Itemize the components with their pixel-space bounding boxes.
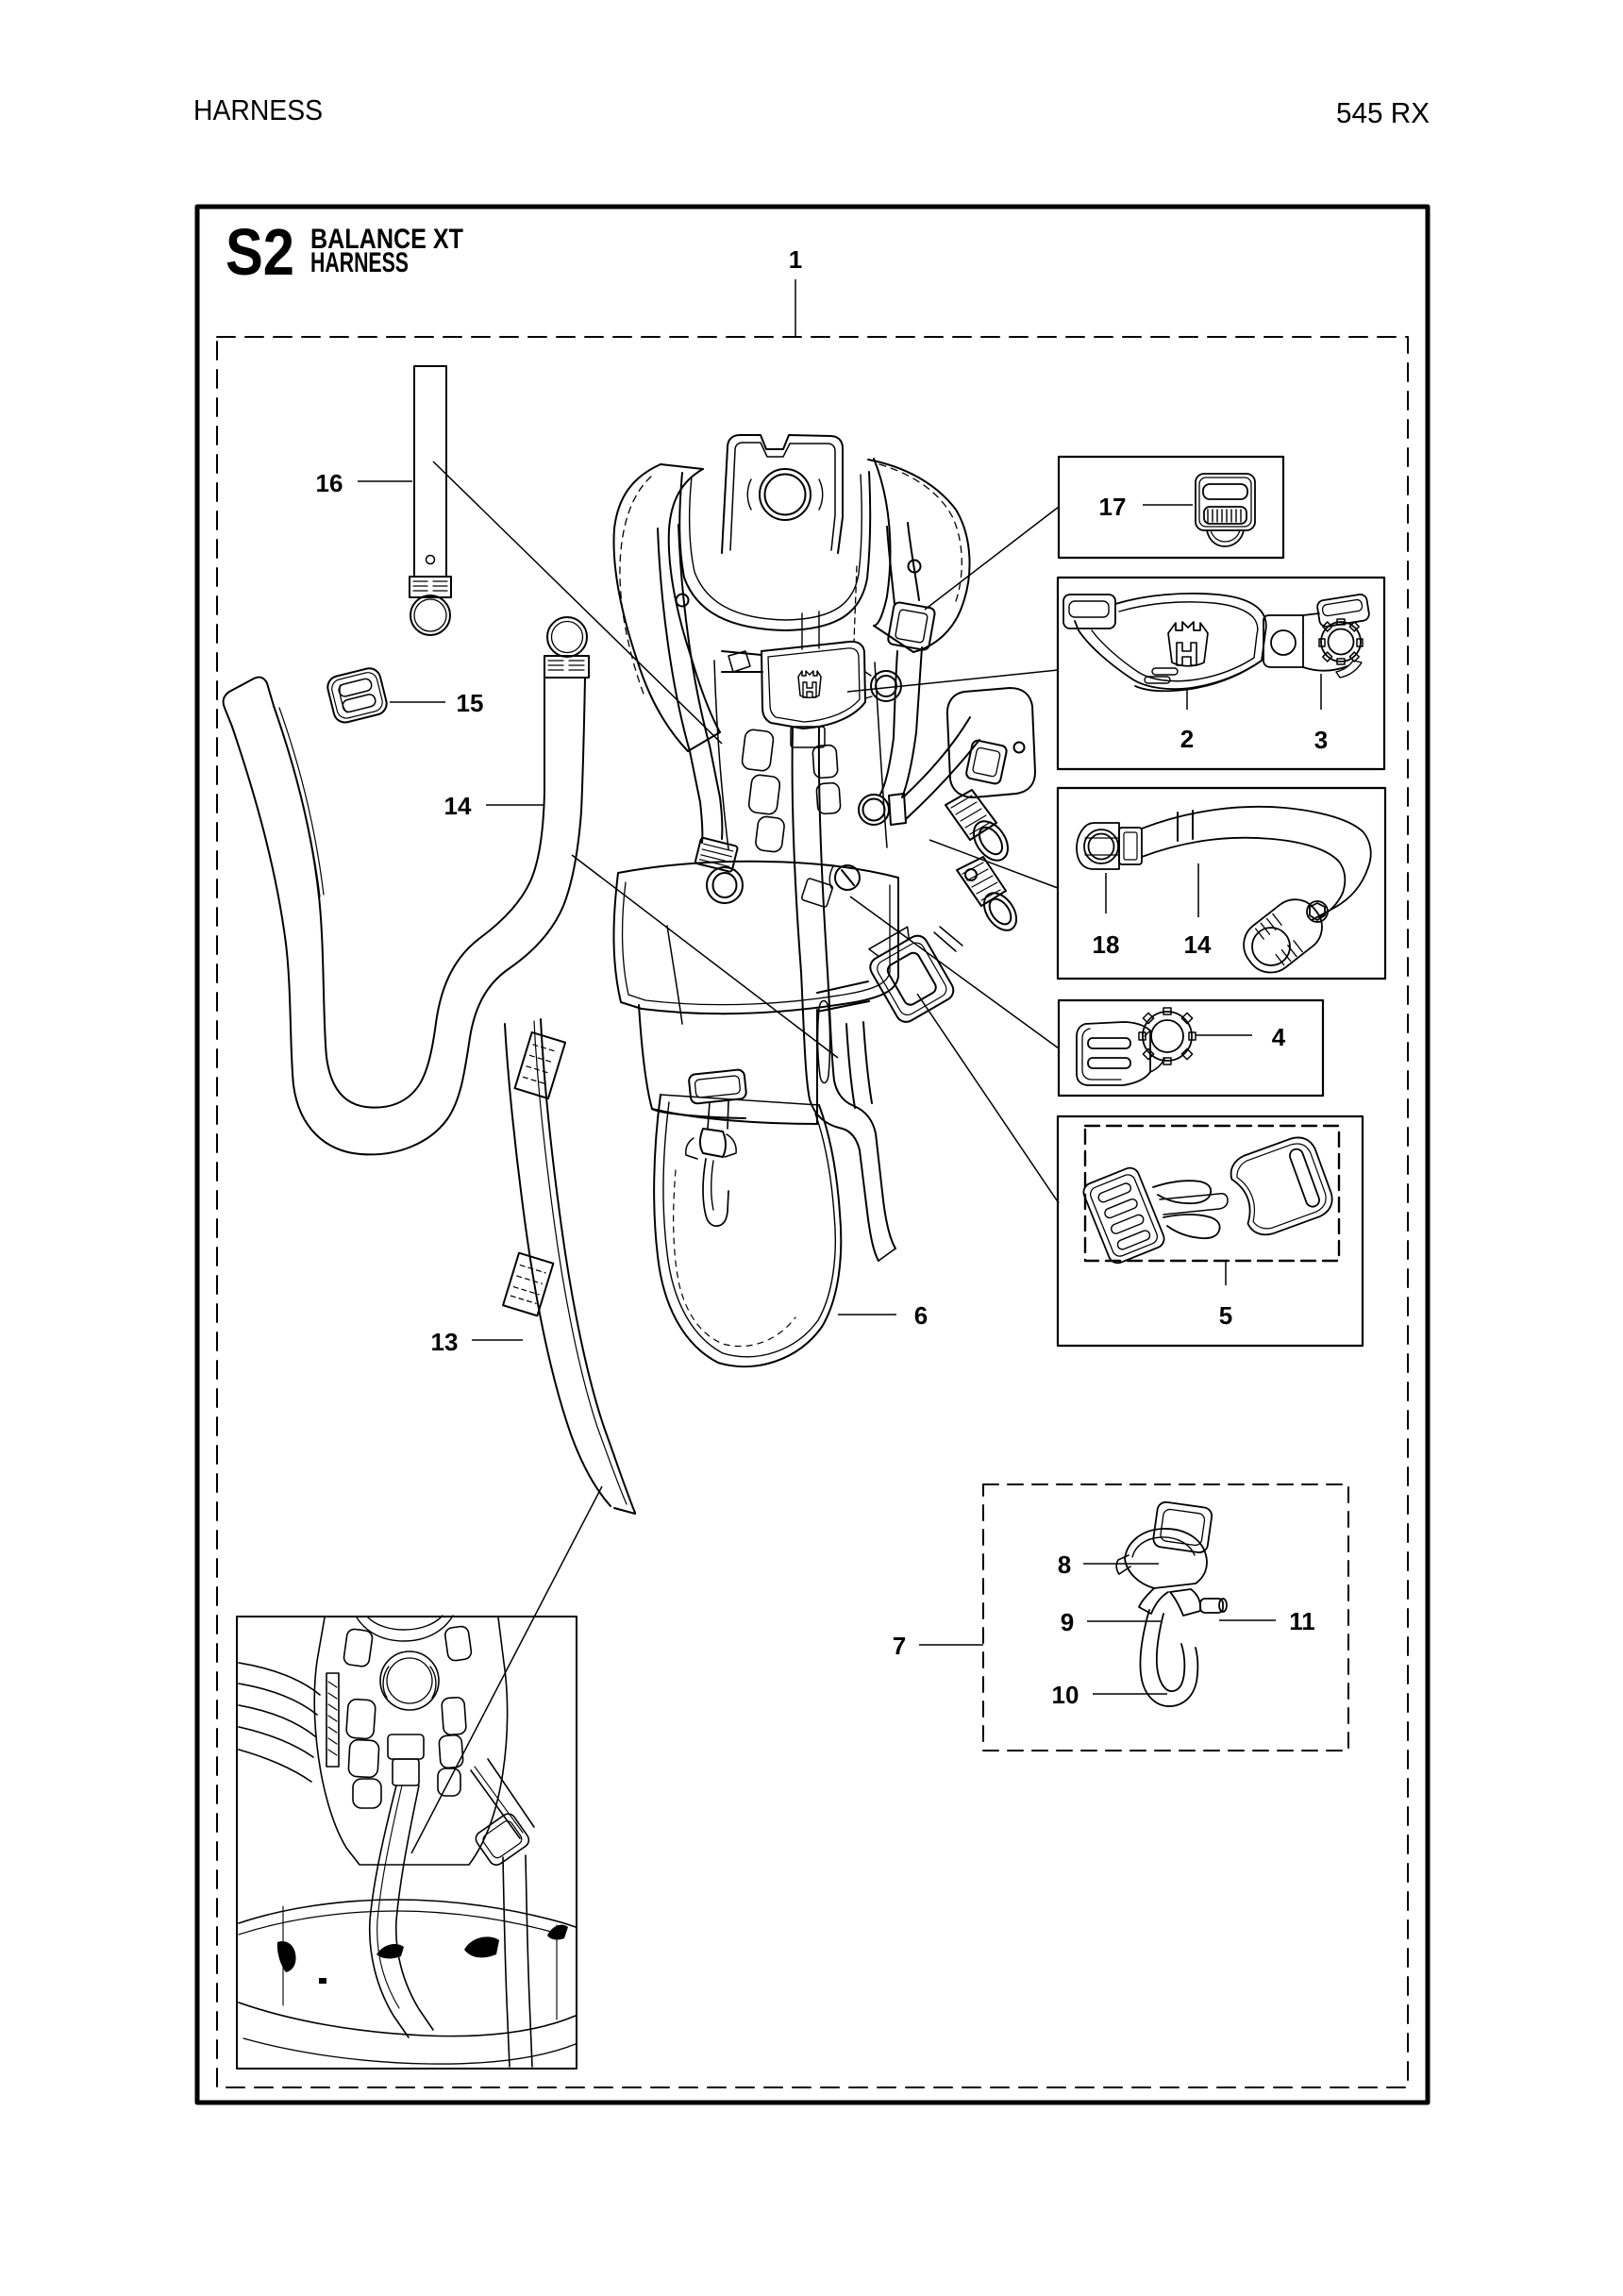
svg-text:7: 7 [893, 1632, 906, 1660]
svg-text:14: 14 [444, 792, 472, 820]
svg-text:18: 18 [1093, 930, 1120, 959]
svg-text:9: 9 [1061, 1608, 1074, 1636]
svg-text:6: 6 [914, 1301, 928, 1330]
svg-text:8: 8 [1058, 1550, 1071, 1579]
svg-text:5: 5 [1219, 1301, 1232, 1330]
svg-text:S2: S2 [226, 215, 294, 289]
svg-text:15: 15 [457, 689, 484, 717]
svg-text:13: 13 [431, 1328, 459, 1356]
svg-text:HARNESS: HARNESS [193, 93, 323, 126]
svg-text:14: 14 [1184, 930, 1212, 959]
svg-text:16: 16 [316, 469, 343, 497]
svg-text:3: 3 [1314, 726, 1328, 754]
svg-text:10: 10 [1052, 1681, 1079, 1709]
svg-text:HARNESS: HARNESS [310, 247, 409, 278]
svg-text:11: 11 [1289, 1607, 1315, 1635]
svg-text:545 RX: 545 RX [1336, 96, 1430, 129]
svg-text:2: 2 [1180, 725, 1194, 753]
svg-text:4: 4 [1272, 1023, 1286, 1051]
svg-text:17: 17 [1099, 493, 1127, 521]
svg-text:1: 1 [789, 245, 802, 274]
